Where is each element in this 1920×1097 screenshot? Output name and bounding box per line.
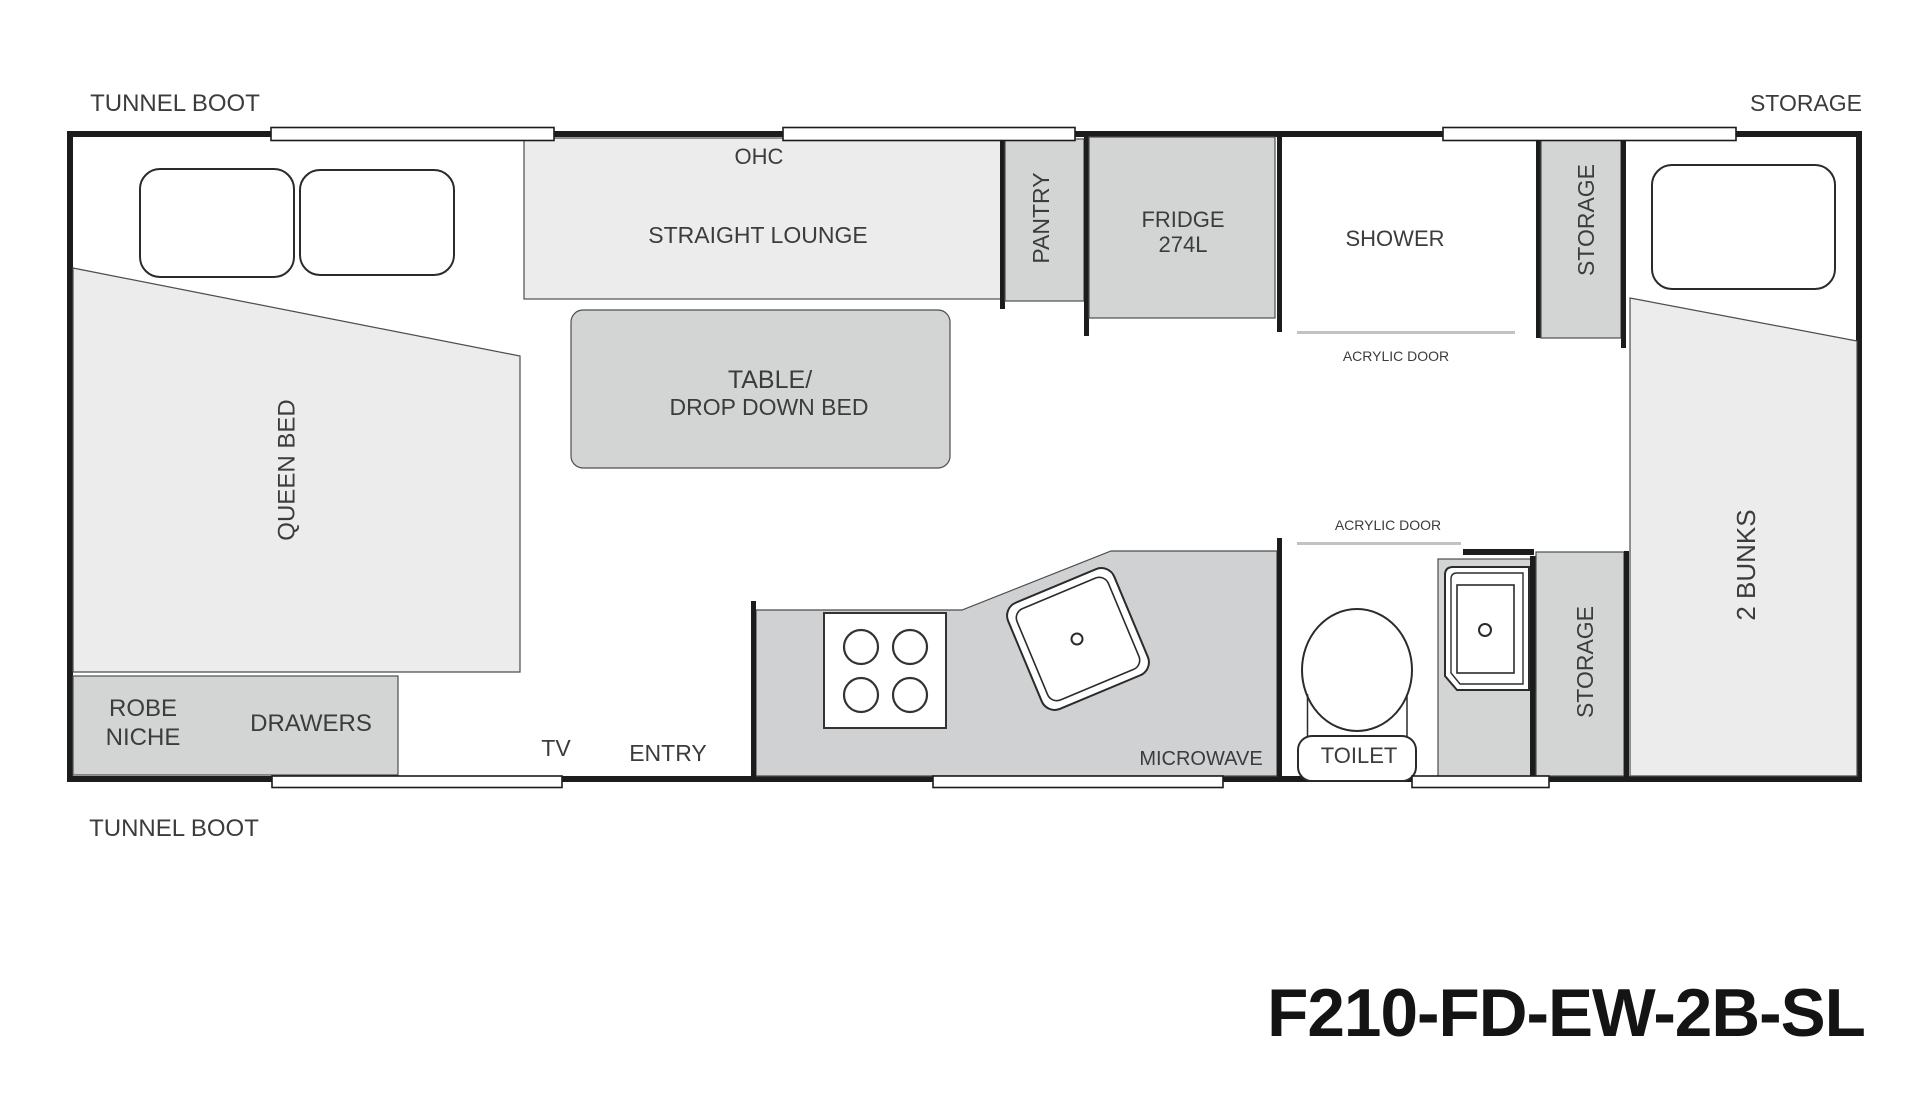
svg-text:TV: TV — [541, 735, 571, 761]
svg-text:TUNNEL BOOT: TUNNEL BOOT — [89, 815, 259, 842]
svg-text:STORAGE: STORAGE — [1573, 164, 1599, 276]
svg-text:TABLE/: TABLE/ — [728, 366, 812, 394]
svg-text:ACRYLIC DOOR: ACRYLIC DOOR — [1343, 348, 1449, 364]
svg-text:274L: 274L — [1159, 232, 1208, 257]
svg-text:STORAGE: STORAGE — [1750, 90, 1862, 116]
svg-text:MICROWAVE: MICROWAVE — [1139, 748, 1262, 770]
svg-text:QUEEN BED: QUEEN BED — [274, 399, 301, 540]
svg-text:ENTRY: ENTRY — [629, 740, 707, 766]
svg-text:ACRYLIC DOOR: ACRYLIC DOOR — [1335, 517, 1441, 533]
svg-text:PANTRY: PANTRY — [1028, 172, 1054, 263]
svg-text:STRAIGHT LOUNGE: STRAIGHT LOUNGE — [648, 222, 867, 248]
svg-text:NICHE: NICHE — [106, 724, 181, 751]
svg-text:TUNNEL BOOT: TUNNEL BOOT — [90, 90, 260, 117]
svg-text:F210-FD-EW-2B-SL: F210-FD-EW-2B-SL — [1267, 976, 1865, 1051]
svg-text:DRAWERS: DRAWERS — [250, 710, 372, 737]
svg-text:STORAGE: STORAGE — [1572, 606, 1598, 718]
svg-text:DROP DOWN BED: DROP DOWN BED — [670, 394, 869, 420]
svg-text:FRIDGE: FRIDGE — [1141, 207, 1224, 232]
svg-text:SHOWER: SHOWER — [1346, 226, 1445, 251]
svg-text:OHC: OHC — [735, 144, 784, 169]
svg-text:ROBE: ROBE — [109, 695, 177, 722]
svg-text:TOILET: TOILET — [1321, 743, 1398, 768]
svg-text:2 BUNKS: 2 BUNKS — [1731, 509, 1761, 620]
